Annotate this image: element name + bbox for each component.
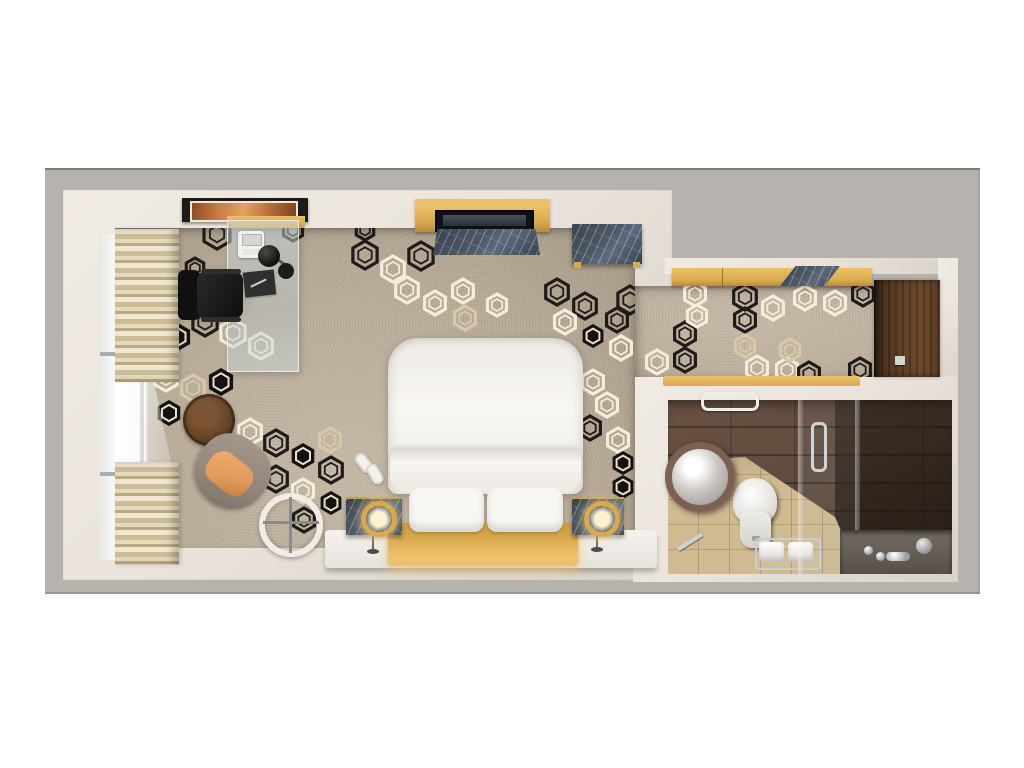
screenshot-canvas [0, 0, 1024, 768]
desk-lamp-joint [278, 263, 294, 279]
pillow [409, 488, 484, 532]
hall-right-wall [938, 258, 958, 384]
bathroom-threshold [663, 376, 860, 386]
curtain-panel [115, 462, 179, 565]
closet-front [672, 268, 872, 286]
door-handle [895, 356, 905, 365]
shower-door-handle [811, 422, 827, 472]
desk-lamp-icon [258, 245, 280, 267]
duvet-fold [390, 449, 581, 486]
closet-door-seam [722, 268, 723, 286]
office-chair-armrest [201, 269, 241, 274]
marble-dresser [433, 229, 540, 255]
glass-cup [916, 538, 932, 554]
pillow [487, 488, 563, 532]
mirror-bar [289, 497, 292, 553]
bathtub [840, 530, 952, 574]
faucet-handle [876, 552, 885, 561]
office-chair [197, 272, 243, 318]
lamp-base [591, 547, 603, 552]
closet-marble-counter [780, 266, 840, 286]
marble-bench [572, 224, 642, 264]
round-vessel-sink [665, 442, 735, 512]
floor-plan [45, 168, 980, 594]
lamp-base [367, 549, 379, 554]
bench-foot [574, 262, 581, 268]
faucet-spout [886, 552, 910, 561]
desk-mat [243, 269, 276, 297]
tv-console [415, 199, 550, 232]
towel-bar [701, 392, 759, 411]
tv-screen [435, 210, 534, 232]
faucet-handle [864, 546, 873, 555]
rolled-towel [759, 542, 784, 562]
office-chair-armrest [201, 317, 241, 322]
table-lamp-right [584, 501, 620, 537]
entry-door [874, 280, 940, 377]
table-lamp-left [361, 501, 397, 537]
bench-foot [633, 262, 640, 268]
shower-glass-panel [798, 400, 803, 574]
floor-mirror [259, 493, 323, 557]
